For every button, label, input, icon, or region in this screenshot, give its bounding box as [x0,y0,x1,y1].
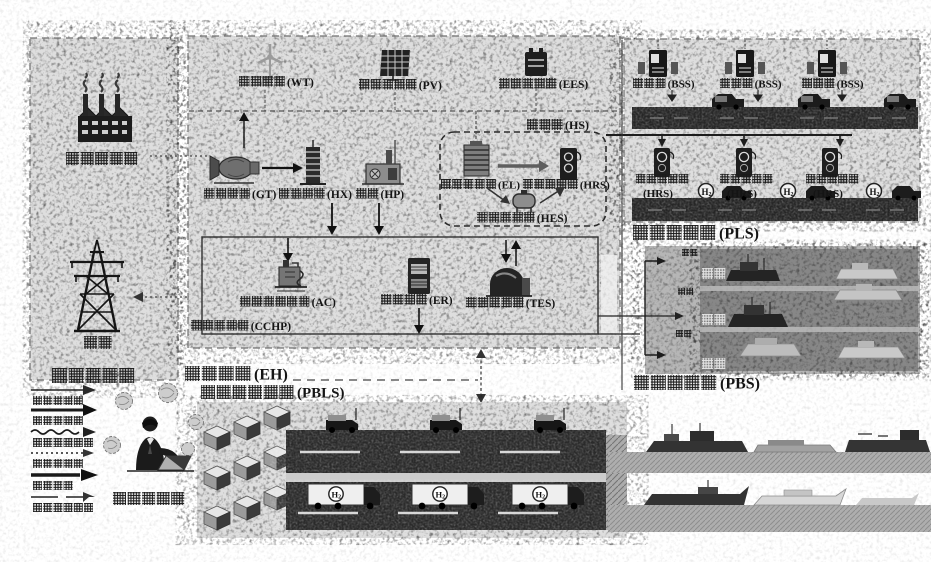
svg-text:(ER): (ER) [429,295,453,307]
svg-text:(HRS): (HRS) [727,188,757,200]
svg-text:(BSS): (BSS) [755,78,782,90]
svg-text:(WT): (WT) [287,77,314,89]
svg-text:(EL): (EL) [498,179,520,191]
svg-text:(BSS): (BSS) [668,78,695,90]
svg-text:(HX): (HX) [327,189,352,201]
svg-text:(CCHP): (CCHP) [251,321,291,333]
svg-text:(BSS): (BSS) [837,78,864,90]
svg-text:(HES): (HES) [537,213,568,225]
svg-text:(PBLS): (PBLS) [297,386,345,402]
svg-text:(HP): (HP) [381,189,405,201]
svg-text:(HRS): (HRS) [643,188,673,200]
svg-text:(EES): (EES) [559,79,589,91]
svg-text:(PV): (PV) [419,80,442,92]
svg-text:(TES): (TES) [526,298,556,310]
svg-text:(HRS): (HRS) [580,179,610,191]
svg-text:(GT): (GT) [252,189,276,201]
svg-text:(PBS): (PBS) [720,376,760,393]
svg-text:(AC): (AC) [312,297,336,309]
svg-text:(EH): (EH) [254,367,288,384]
svg-text:(PLS): (PLS) [719,226,759,243]
svg-text:(HS): (HS) [565,118,589,132]
svg-text:(HRS): (HRS) [813,188,843,200]
